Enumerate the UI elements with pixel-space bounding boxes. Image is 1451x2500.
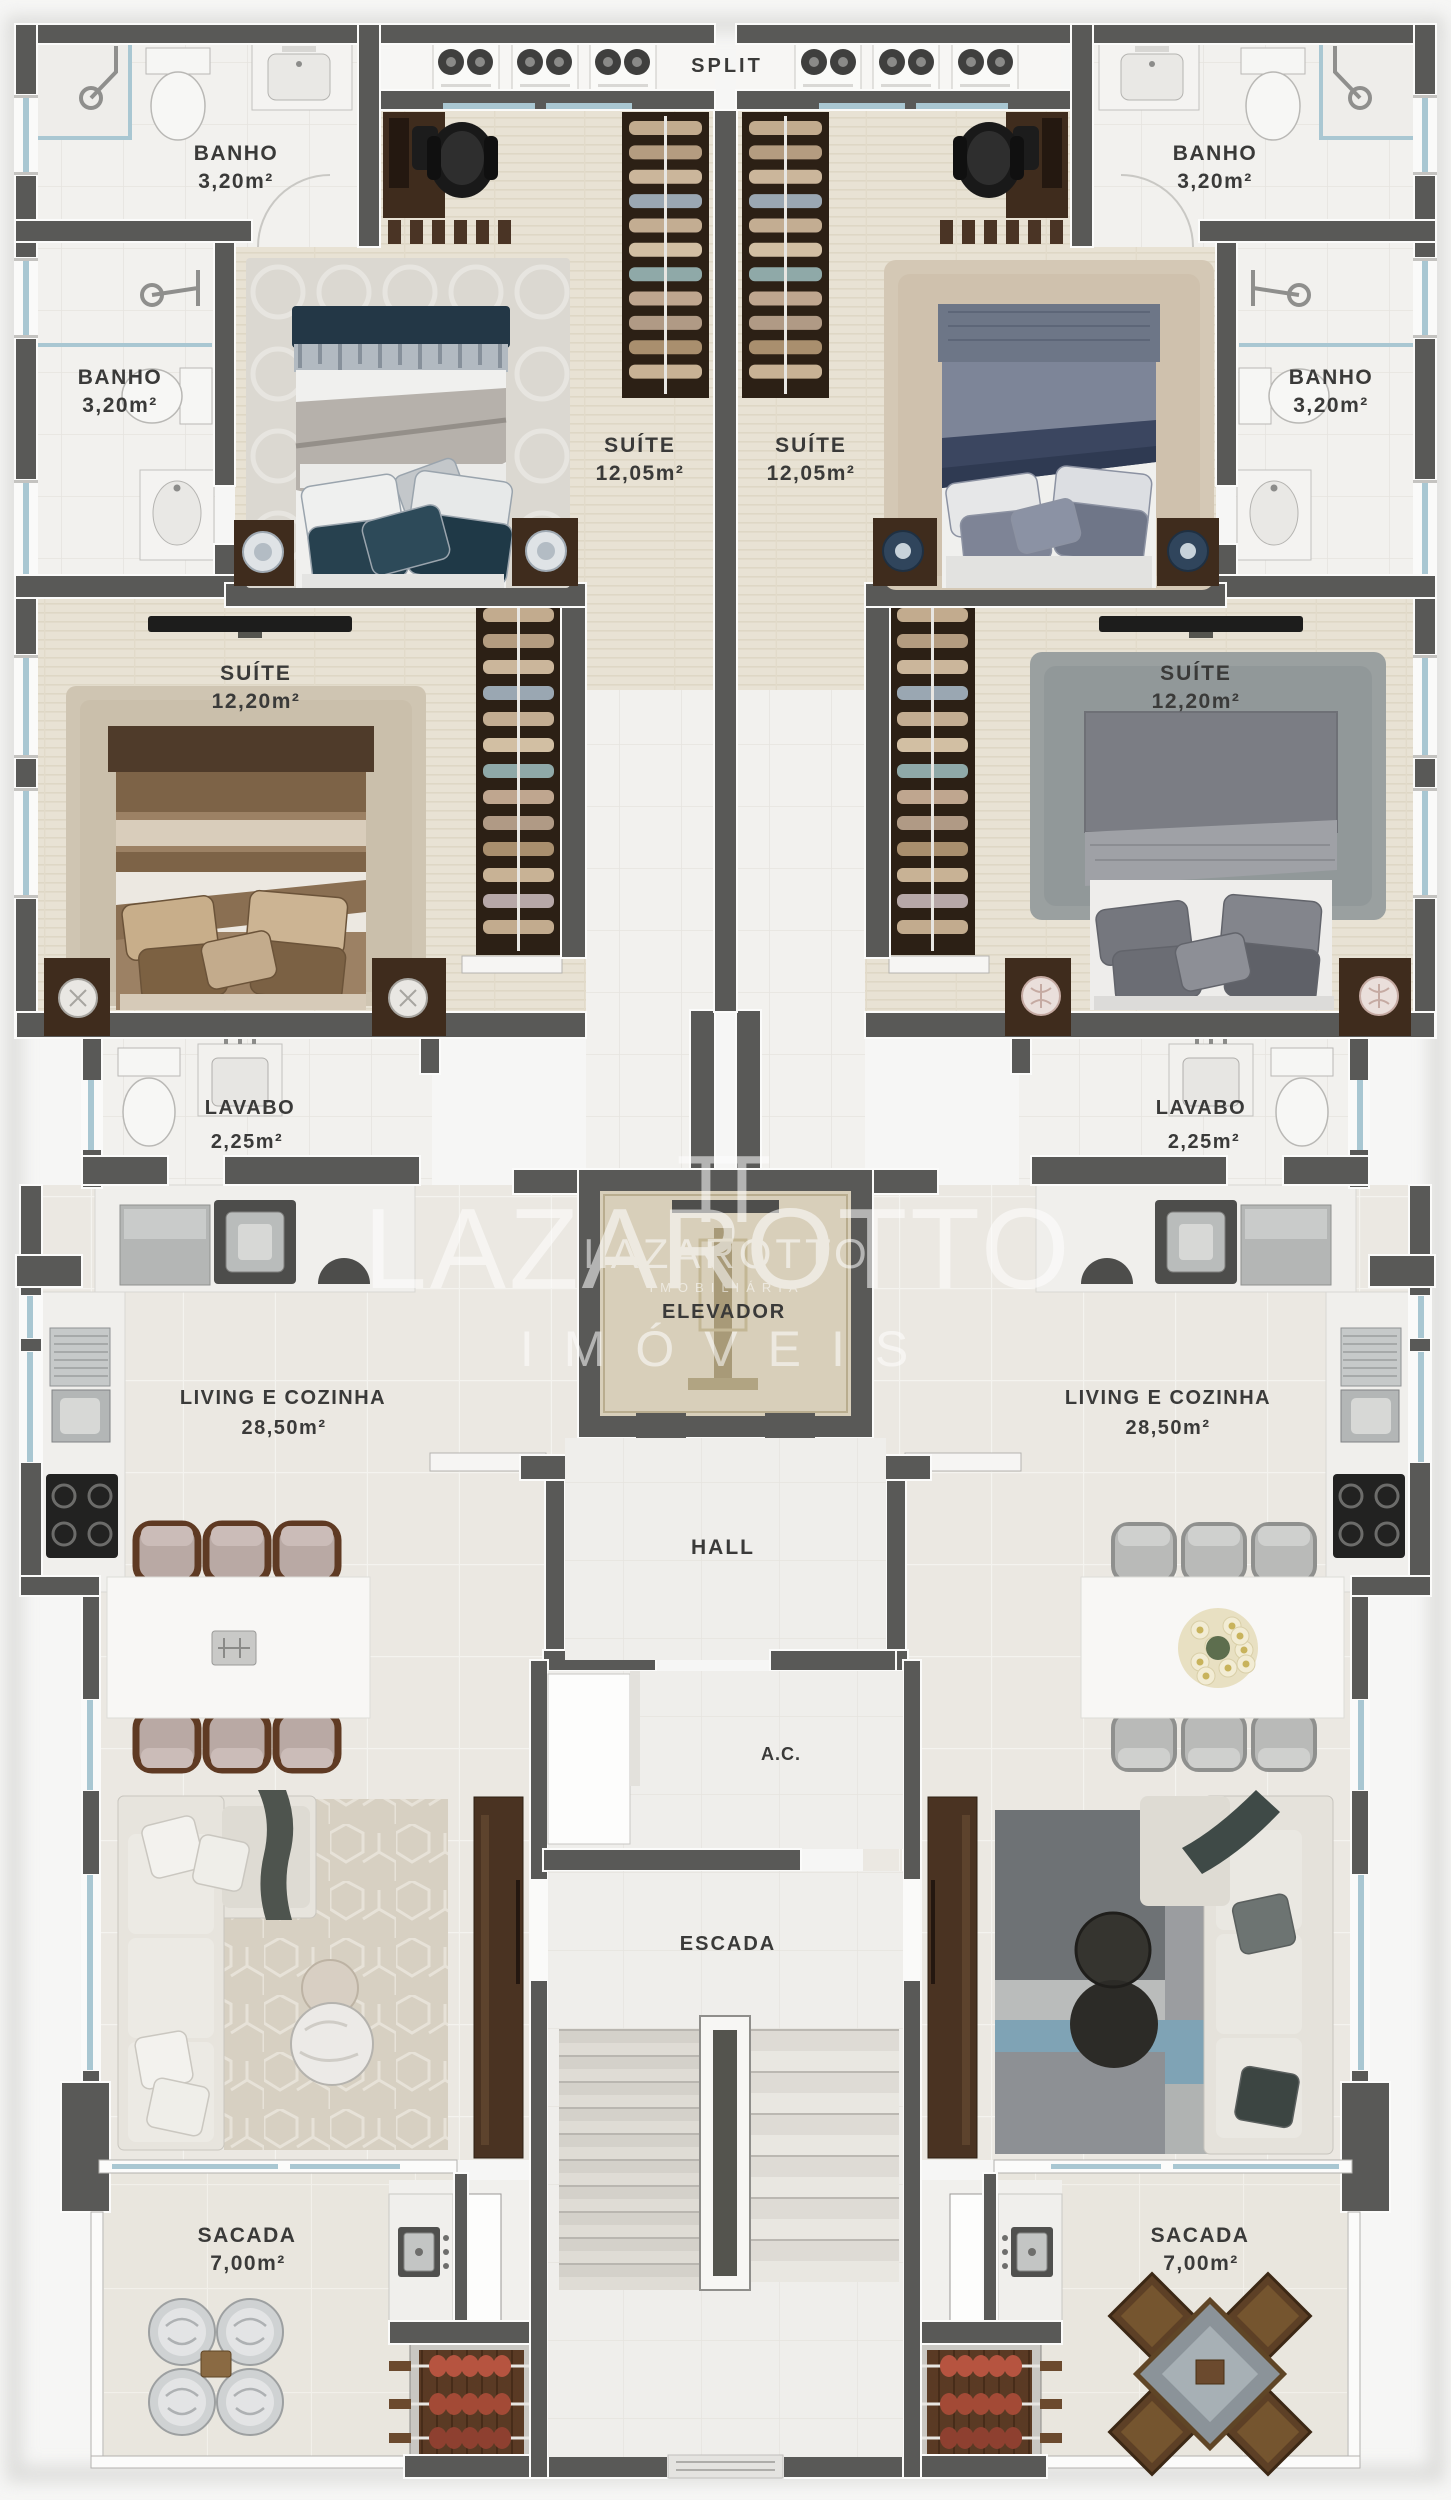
svg-text:SPLIT: SPLIT [691, 55, 763, 77]
svg-text:28,50m²: 28,50m² [242, 1417, 327, 1439]
svg-text:3,20m²: 3,20m² [1177, 170, 1253, 193]
svg-text:LIVING E COZINHA: LIVING E COZINHA [1065, 1387, 1271, 1409]
svg-text:IMOBILIÁRIA: IMOBILIÁRIA [649, 1280, 804, 1295]
svg-text:SACADA: SACADA [1151, 2224, 1250, 2247]
svg-text:T: T [713, 1136, 772, 1243]
svg-text:2,25m²: 2,25m² [1168, 1131, 1240, 1153]
svg-text:7,00m²: 7,00m² [1163, 2252, 1239, 2275]
svg-text:BANHO: BANHO [1173, 142, 1258, 165]
svg-text:SUÍTE: SUÍTE [1160, 662, 1232, 685]
svg-text:SUÍTE: SUÍTE [220, 662, 292, 685]
svg-text:A.C.: A.C. [761, 1744, 801, 1764]
svg-text:3,20m²: 3,20m² [82, 394, 158, 417]
svg-text:HALL: HALL [691, 1536, 755, 1559]
svg-text:7,00m²: 7,00m² [210, 2252, 286, 2275]
svg-text:2,25m²: 2,25m² [211, 1131, 283, 1153]
svg-text:28,50m²: 28,50m² [1126, 1417, 1211, 1439]
svg-text:12,05m²: 12,05m² [596, 462, 685, 485]
svg-text:BANHO: BANHO [78, 366, 163, 389]
svg-text:3,20m²: 3,20m² [198, 170, 274, 193]
svg-text:LAVABO: LAVABO [1156, 1097, 1246, 1119]
svg-text:SUÍTE: SUÍTE [604, 434, 676, 457]
svg-text:BANHO: BANHO [1289, 366, 1374, 389]
svg-text:LAVABO: LAVABO [205, 1097, 295, 1119]
svg-text:LIVING E COZINHA: LIVING E COZINHA [180, 1387, 386, 1409]
svg-text:LAZAROTTO: LAZAROTTO [583, 1230, 870, 1277]
svg-text:SUÍTE: SUÍTE [775, 434, 847, 457]
svg-text:ESCADA: ESCADA [680, 1933, 776, 1955]
svg-text:BANHO: BANHO [194, 142, 279, 165]
svg-text:12,20m²: 12,20m² [1152, 690, 1241, 713]
svg-text:3,20m²: 3,20m² [1293, 394, 1369, 417]
svg-text:12,05m²: 12,05m² [767, 462, 856, 485]
svg-text:SACADA: SACADA [198, 2224, 297, 2247]
svg-text:IMÓVEIS: IMÓVEIS [520, 1321, 938, 1377]
svg-text:12,20m²: 12,20m² [212, 690, 301, 713]
